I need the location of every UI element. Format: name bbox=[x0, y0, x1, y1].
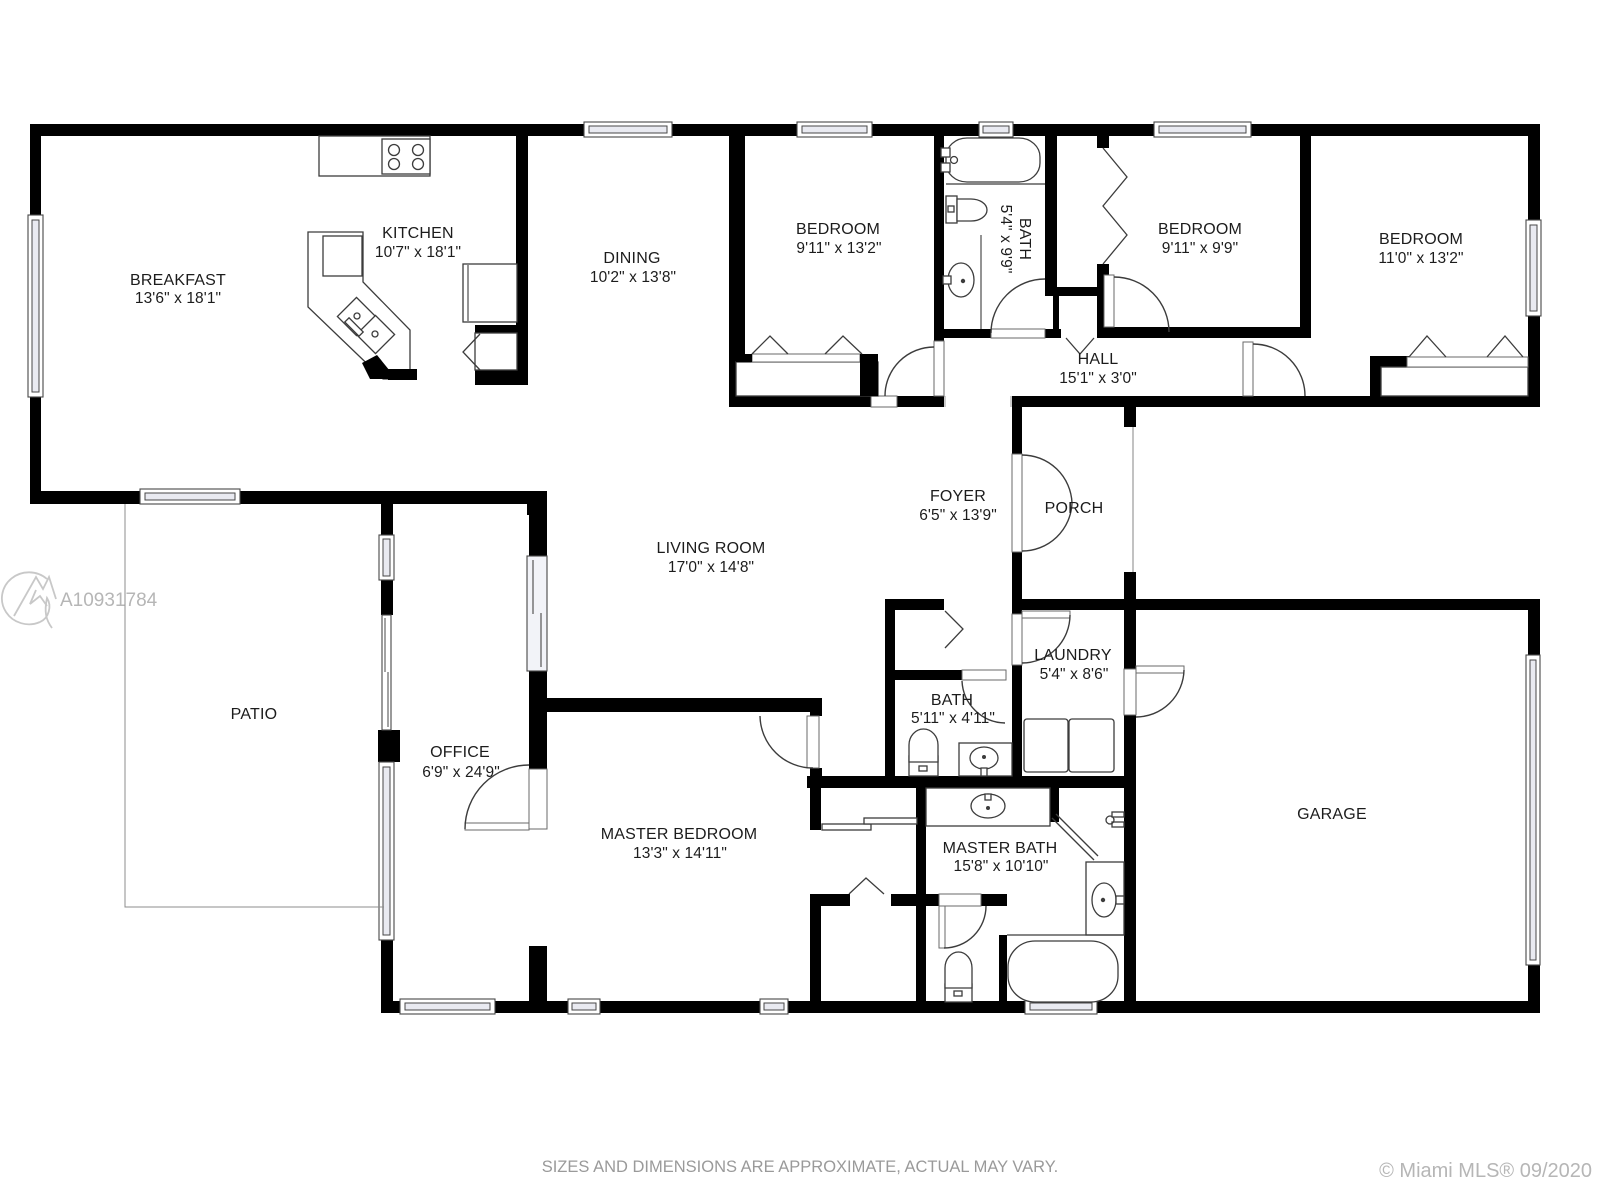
svg-text:BATH: BATH bbox=[931, 692, 973, 709]
svg-text:FOYER: FOYER bbox=[930, 488, 986, 505]
svg-text:17'0" x 14'8": 17'0" x 14'8" bbox=[668, 559, 754, 576]
svg-text:BEDROOM: BEDROOM bbox=[796, 221, 880, 238]
svg-text:9'11" x 13'2": 9'11" x 13'2" bbox=[796, 240, 881, 257]
svg-text:A10931784: A10931784 bbox=[60, 590, 158, 611]
svg-text:GARAGE: GARAGE bbox=[1297, 806, 1367, 823]
svg-text:BREAKFAST: BREAKFAST bbox=[130, 272, 226, 289]
svg-text:6'9" x 24'9": 6'9" x 24'9" bbox=[422, 764, 500, 781]
svg-text:PATIO: PATIO bbox=[231, 706, 278, 723]
svg-text:6'5" x 13'9": 6'5" x 13'9" bbox=[919, 507, 997, 524]
svg-text:15'1" x 3'0": 15'1" x 3'0" bbox=[1059, 370, 1137, 387]
svg-text:9'11" x 9'9": 9'11" x 9'9" bbox=[1162, 240, 1238, 257]
svg-text:BEDROOM: BEDROOM bbox=[1379, 231, 1463, 248]
svg-text:HALL: HALL bbox=[1078, 351, 1119, 368]
svg-text:© Miami MLS® 09/2020: © Miami MLS® 09/2020 bbox=[1379, 1160, 1592, 1182]
svg-text:13'6" x 18'1": 13'6" x 18'1" bbox=[135, 290, 221, 307]
svg-text:MASTER BEDROOM: MASTER BEDROOM bbox=[601, 826, 758, 843]
svg-text:5'4" x 8'6": 5'4" x 8'6" bbox=[1040, 666, 1109, 683]
svg-text:DINING: DINING bbox=[603, 250, 660, 267]
svg-text:OFFICE: OFFICE bbox=[430, 744, 490, 761]
svg-text:KITCHEN: KITCHEN bbox=[382, 225, 454, 242]
svg-text:15'8" x 10'10": 15'8" x 10'10" bbox=[953, 858, 1048, 875]
svg-text:11'0" x 13'2": 11'0" x 13'2" bbox=[1378, 250, 1463, 267]
svg-text:5'4" x 9'9": 5'4" x 9'9" bbox=[997, 205, 1014, 274]
svg-text:LAUNDRY: LAUNDRY bbox=[1034, 647, 1112, 664]
svg-text:MASTER BATH: MASTER BATH bbox=[943, 840, 1058, 857]
svg-text:BATH: BATH bbox=[1016, 218, 1033, 260]
svg-text:PORCH: PORCH bbox=[1045, 500, 1104, 517]
svg-text:10'7" x 18'1": 10'7" x 18'1" bbox=[375, 244, 461, 261]
svg-text:10'2" x 13'8": 10'2" x 13'8" bbox=[590, 269, 676, 286]
svg-text:5'11" x 4'11": 5'11" x 4'11" bbox=[911, 710, 995, 727]
svg-text:LIVING ROOM: LIVING ROOM bbox=[657, 540, 766, 557]
svg-text:13'3" x 14'11": 13'3" x 14'11" bbox=[633, 845, 727, 862]
svg-text:SIZES AND DIMENSIONS ARE APPRO: SIZES AND DIMENSIONS ARE APPROXIMATE, AC… bbox=[542, 1158, 1059, 1176]
svg-text:BEDROOM: BEDROOM bbox=[1158, 221, 1242, 238]
